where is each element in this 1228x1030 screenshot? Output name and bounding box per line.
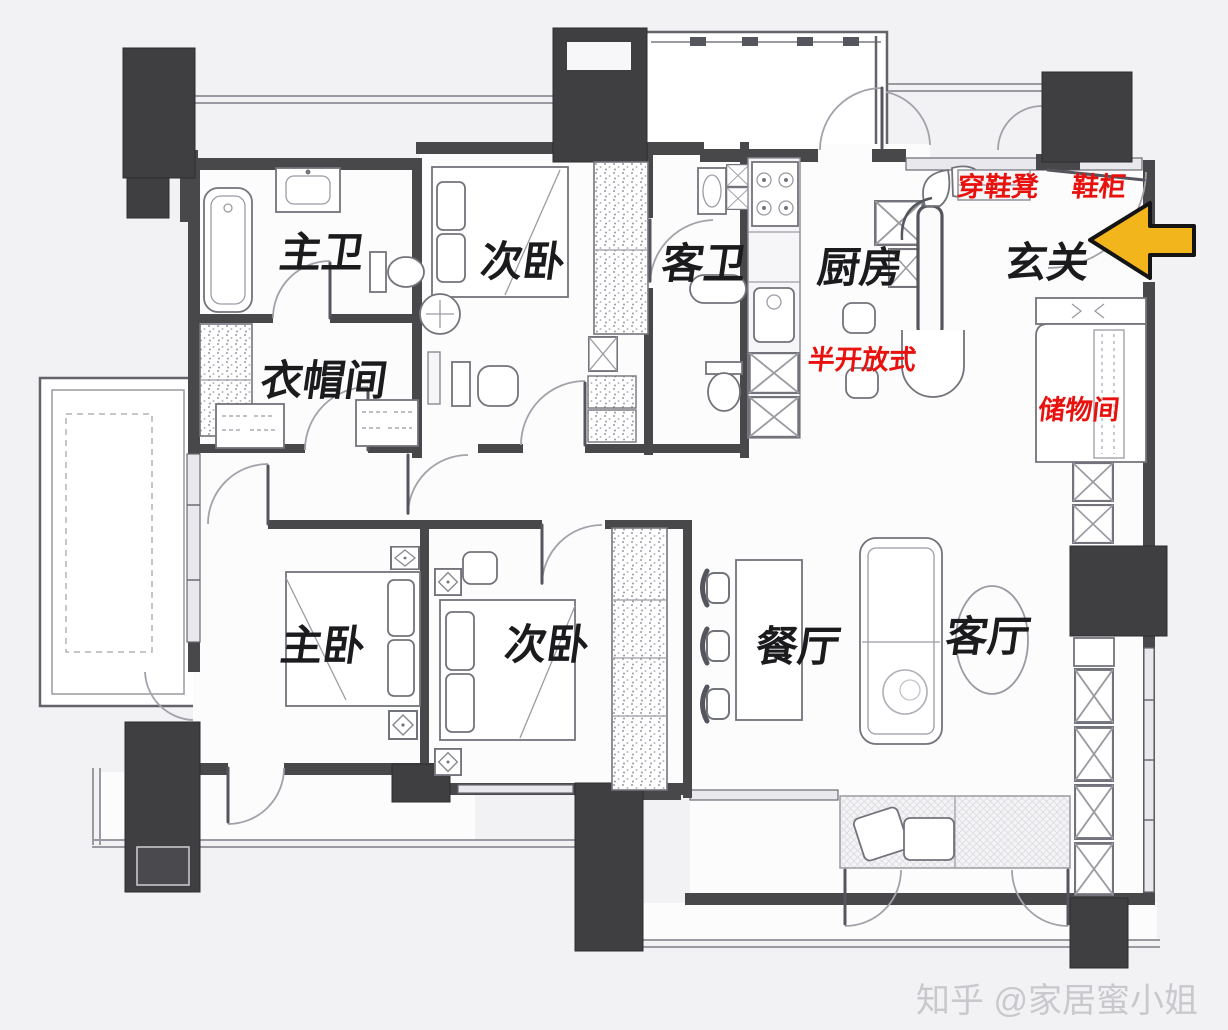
toilet <box>370 252 386 292</box>
nightstand <box>435 569 461 595</box>
dining-chair <box>703 629 730 663</box>
bedroom2-window <box>458 785 573 793</box>
kitchen-sink <box>754 288 794 342</box>
bar-counter <box>918 206 942 338</box>
dining-chair <box>703 687 730 721</box>
balcony-sliding-door <box>187 454 200 642</box>
room-label-kitchen: 厨房 <box>815 244 906 291</box>
room-label-cloakroom: 衣帽间 <box>258 357 391 404</box>
utility-balcony <box>645 32 887 150</box>
furniture-balcony <box>840 796 1070 868</box>
annotation-semi-open: 半开放式 <box>806 344 917 375</box>
room-label-master-bath: 主卫 <box>277 229 368 276</box>
pillow <box>437 234 465 282</box>
wardrobe <box>594 162 648 334</box>
pillow <box>446 674 474 732</box>
pillow <box>388 640 414 696</box>
eave-line-top-left <box>193 96 556 103</box>
entry-cabinet <box>1036 298 1146 324</box>
annotation-shoe-bench: 穿鞋凳 <box>956 171 1041 202</box>
nightstand <box>389 711 417 739</box>
nightstand <box>435 749 461 775</box>
annotation-shoe-cabinet: 鞋柜 <box>1070 171 1127 202</box>
cloakroom-cabinet <box>356 400 418 446</box>
eave-line-top-right <box>888 84 1046 91</box>
desk-chair <box>478 366 518 406</box>
room-label-dining: 餐厅 <box>753 623 844 670</box>
desk <box>452 362 470 406</box>
living-window <box>1144 648 1154 892</box>
room-label-bedroom2-top: 次卧 <box>478 238 569 285</box>
dining-chair <box>703 571 730 605</box>
room-label-master-bedroom: 主卧 <box>278 622 369 669</box>
island-cabinet <box>875 201 923 245</box>
room-label-bedroom2-bottom: 次卧 <box>502 621 593 668</box>
stool <box>843 303 875 333</box>
cushion <box>904 818 954 860</box>
cloakroom-cabinet <box>216 404 284 448</box>
nightstand <box>391 547 419 569</box>
room-label-living: 客厅 <box>943 613 1034 660</box>
floor-plan: 主卫 次卧 客卫 厨房 玄关 衣帽间 主卧 次卧 餐厅 客厅 穿鞋凳 鞋柜 半开… <box>0 0 1228 1030</box>
left-balcony <box>40 378 196 706</box>
storage-room-outline <box>1036 324 1146 462</box>
room-label-entry: 玄关 <box>1002 239 1093 286</box>
pillow <box>388 580 414 636</box>
pillow <box>446 612 474 670</box>
cabinets-right-wall <box>1073 463 1114 895</box>
stove <box>752 162 798 226</box>
wardrobe <box>612 528 667 790</box>
pillow <box>437 182 465 230</box>
annotation-storage-room: 储物间 <box>1037 394 1121 425</box>
watermark: 知乎 @家居蜜小姐 <box>916 982 1198 1020</box>
dining-south-window <box>690 790 838 800</box>
room-label-guest-bath: 客卫 <box>659 240 750 287</box>
